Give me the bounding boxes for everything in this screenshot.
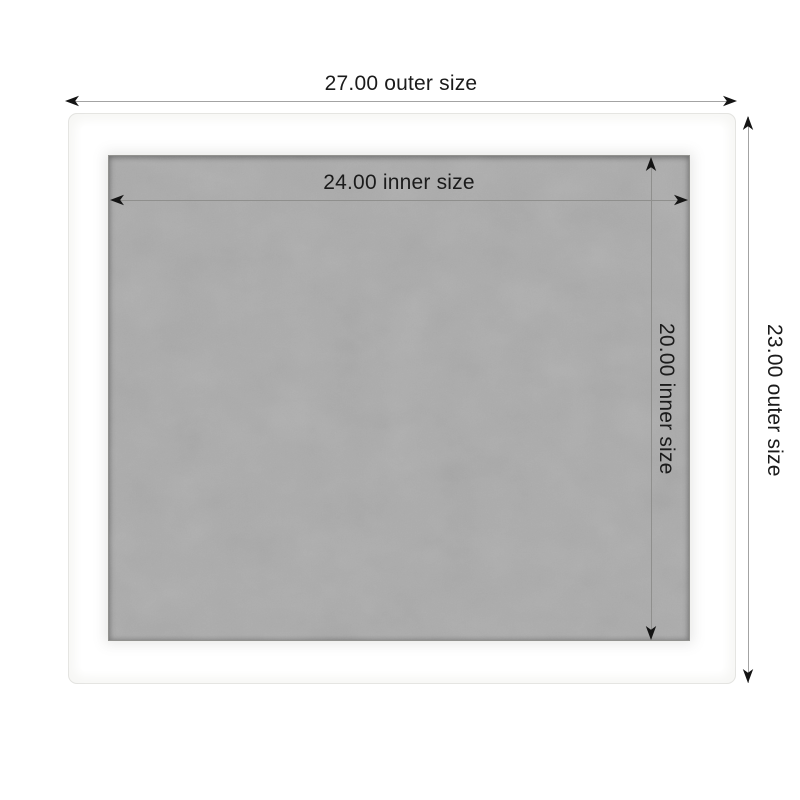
arrow-up-icon xyxy=(742,116,754,130)
inner-height-dimension-line xyxy=(651,158,652,640)
outer-width-label: 27.00 outer size xyxy=(68,72,734,96)
outer-height-label: 23.00 outer size xyxy=(762,324,786,477)
inner-height-label-box: 20.00 inner size xyxy=(654,158,678,640)
arrow-right-icon xyxy=(723,95,737,107)
fabric-board-surface xyxy=(108,155,690,641)
arrow-up-icon xyxy=(645,157,657,171)
product-dimension-diagram: 27.00 outer size 23.00 outer size 24.00 … xyxy=(0,0,800,800)
inner-width-label: 24.00 inner size xyxy=(108,171,690,195)
arrow-left-icon xyxy=(110,194,124,206)
arrow-down-icon xyxy=(742,669,754,683)
outer-width-dimension-line xyxy=(68,101,734,102)
arrow-left-icon xyxy=(65,95,79,107)
fabric-texture xyxy=(109,156,689,640)
inner-height-label: 20.00 inner size xyxy=(654,323,678,474)
inner-width-dimension-line xyxy=(112,200,688,201)
outer-height-label-box: 23.00 outer size xyxy=(762,117,786,683)
arrow-down-icon xyxy=(645,626,657,640)
outer-height-dimension-line xyxy=(748,117,749,683)
